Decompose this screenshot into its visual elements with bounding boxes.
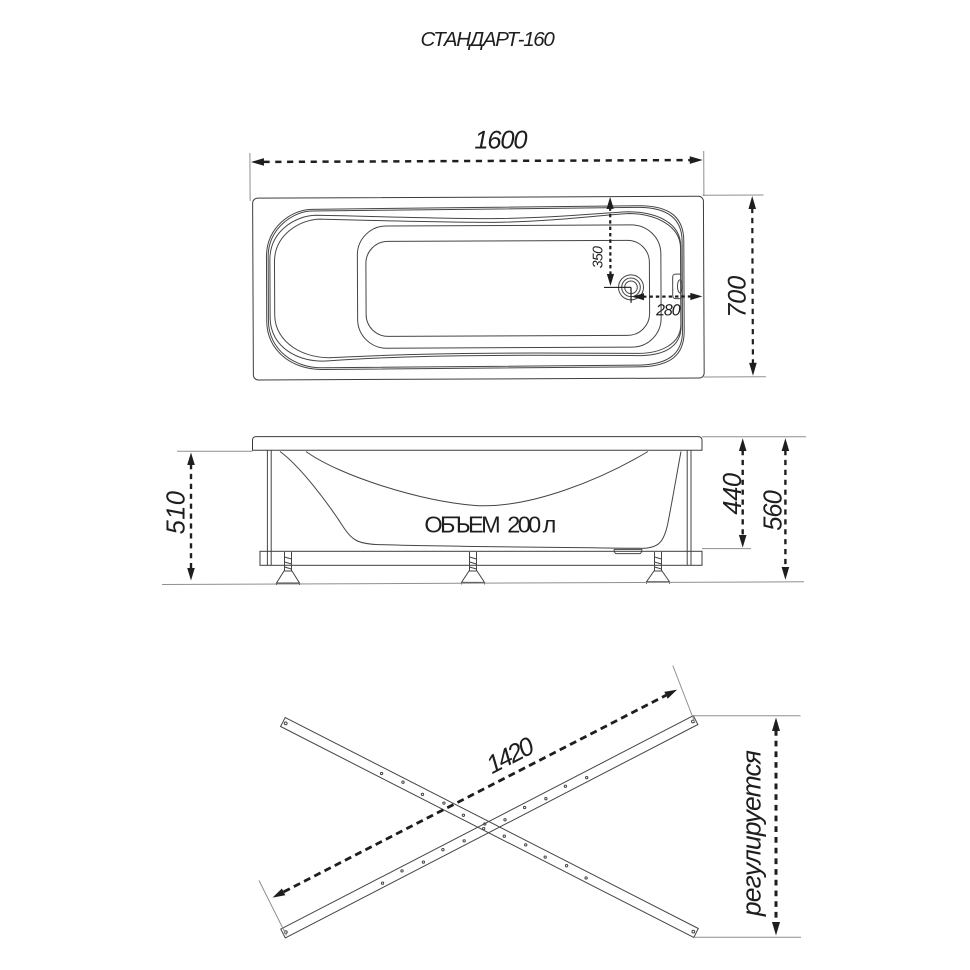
svg-text:1600: 1600 <box>474 126 527 154</box>
svg-text:510: 510 <box>162 491 190 535</box>
svg-text:280: 280 <box>655 302 681 319</box>
svg-text:350: 350 <box>589 246 605 268</box>
svg-text:560: 560 <box>760 490 788 530</box>
svg-text:регулируется: регулируется <box>737 750 767 917</box>
svg-text:ОБЪЕМ 200 л: ОБЪЕМ 200 л <box>424 512 555 538</box>
svg-text:СТАНДАРТ-160: СТАНДАРТ-160 <box>420 28 555 51</box>
svg-text:1420: 1420 <box>482 732 539 779</box>
svg-text:700: 700 <box>723 276 751 318</box>
svg-text:440: 440 <box>719 473 747 515</box>
